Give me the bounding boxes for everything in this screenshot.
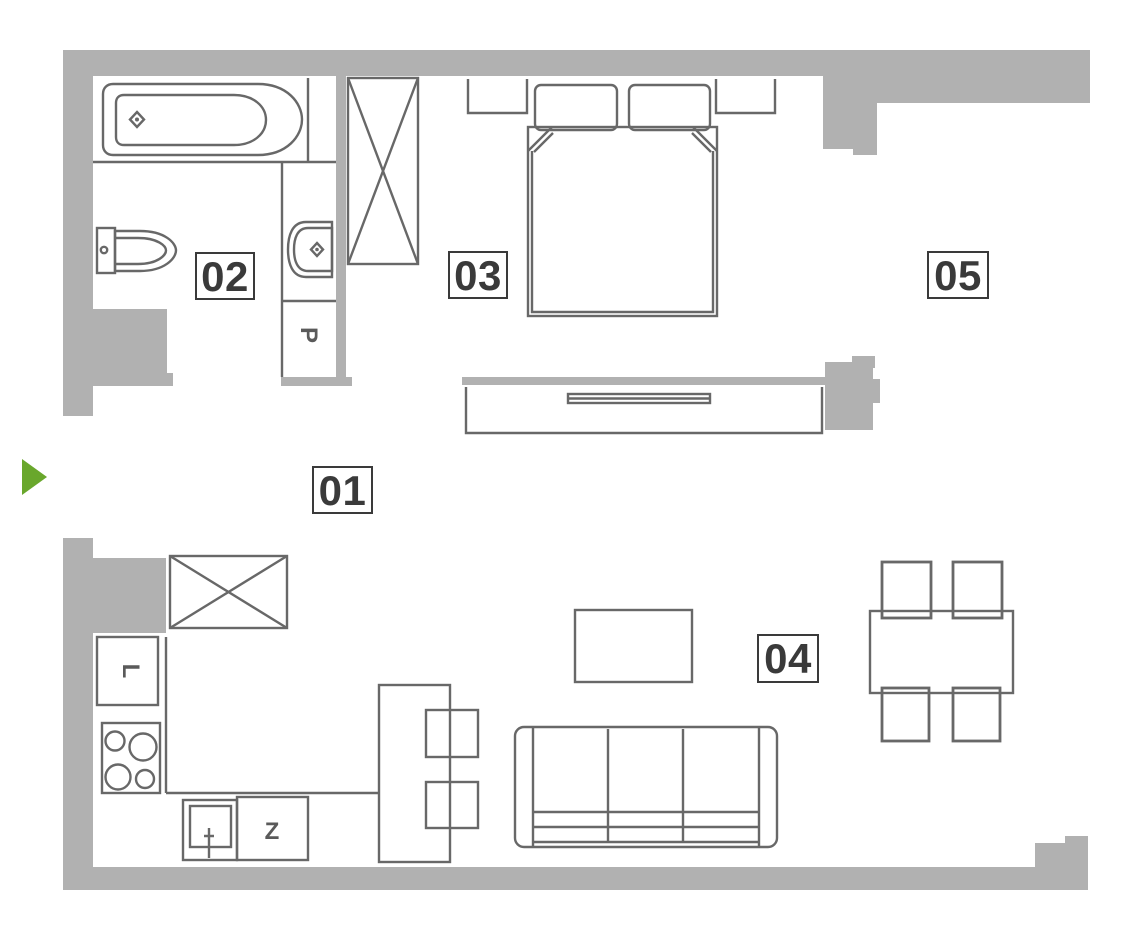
burner-icon (106, 765, 131, 790)
room-label-04-text: 04 (764, 635, 812, 682)
washbasin-inner (294, 228, 332, 271)
floor-plan-canvas: P 02 03 (0, 0, 1144, 945)
wall-left-upper (63, 50, 93, 416)
room-label-01: 01 (313, 467, 372, 514)
dining-set (870, 562, 1013, 741)
dining-table (870, 611, 1013, 693)
wall-bottom (63, 867, 1088, 890)
sofa-backrest-lines (533, 812, 759, 842)
bar-stool (426, 710, 478, 757)
wall-mid-pillar-step (852, 356, 875, 368)
dining-chair (953, 562, 1002, 618)
kitchen-sink (183, 800, 237, 860)
sofa (515, 727, 777, 847)
sink-faucet-icon (204, 828, 214, 858)
wall-se-step-b (1065, 836, 1088, 869)
bar-stool (426, 782, 478, 828)
floor-plan: P 02 03 (0, 0, 1144, 945)
stove-burners (106, 732, 157, 790)
sink-cabinet-z: Z (237, 797, 308, 860)
toilet-flush-button (101, 247, 107, 253)
kitchen-island (379, 685, 478, 862)
pillow-left (535, 85, 617, 130)
burner-icon (106, 732, 125, 751)
sofa-seat-dividers (608, 729, 683, 842)
wall-left-lower (63, 538, 93, 890)
kitchen: L Z (97, 637, 478, 862)
bed-inner (532, 151, 713, 312)
burner-icon (130, 734, 157, 761)
bathtub-faucet-dot (135, 118, 139, 122)
fridge-label: L (117, 664, 144, 679)
wall-mid-pillar (825, 362, 873, 430)
toilet-bowl-inner (115, 238, 166, 264)
wall-mid-pillar-bump (873, 379, 880, 403)
wall-kitchen-block (93, 558, 166, 633)
wall-ne-pillar-a (823, 50, 853, 149)
fridge: L (97, 637, 158, 705)
burner-icon (136, 770, 154, 788)
wall-top-right (877, 50, 1090, 103)
dining-chair (882, 562, 931, 618)
washing-machine: P (282, 162, 336, 377)
wall-bedroom-living (462, 377, 825, 385)
room-label-03: 03 (449, 252, 507, 299)
wardrobe-cross (348, 78, 418, 264)
walls (63, 50, 1090, 890)
nightstand-left (468, 79, 527, 113)
nightstand-right (716, 79, 775, 113)
wall-ne-pillar-b (853, 50, 877, 155)
dining-chair (953, 688, 1000, 741)
stove (102, 723, 160, 793)
room-label-05-text: 05 (934, 252, 982, 299)
sink-basin (190, 806, 231, 847)
room-label-05: 05 (928, 252, 988, 299)
washbasin (288, 222, 332, 277)
wall-bathroom-south (93, 309, 167, 373)
tv-sideboard (466, 387, 822, 433)
terrace: 05 (928, 252, 988, 299)
bathtub (103, 84, 302, 155)
bed (528, 127, 717, 316)
sofa-armrests (533, 727, 759, 847)
pillow-right (629, 85, 710, 130)
island-outline (379, 685, 450, 862)
bedroom: 03 (348, 78, 775, 316)
wardrobe (348, 78, 418, 264)
entrance-arrow-icon (22, 459, 47, 495)
room-label-02-text: 02 (201, 253, 249, 300)
wall-washer-strip (281, 377, 352, 386)
dining-chair (882, 688, 929, 741)
room-label-02: 02 (196, 253, 254, 300)
room-label-04: 04 (758, 635, 818, 682)
sofa-outline (515, 727, 777, 847)
bed-outline (528, 127, 717, 316)
room-label-03-text: 03 (454, 252, 502, 299)
wall-top (63, 50, 825, 76)
washbasin-faucet-dot (315, 248, 319, 252)
toilet (97, 228, 176, 273)
hall-closet (170, 556, 287, 628)
room-label-01-text: 01 (319, 467, 367, 514)
sink-label: Z (265, 818, 280, 845)
living-room: 04 (515, 562, 1013, 847)
coffee-table (575, 610, 692, 682)
kitchen-counter-edge (166, 637, 379, 793)
wall-bathroom-east (336, 76, 346, 377)
wall-se-step-a (1035, 843, 1065, 869)
wall-bathroom-south-foot (93, 373, 173, 386)
washing-machine-label: P (295, 327, 322, 343)
hall-closet-cross (170, 556, 287, 628)
